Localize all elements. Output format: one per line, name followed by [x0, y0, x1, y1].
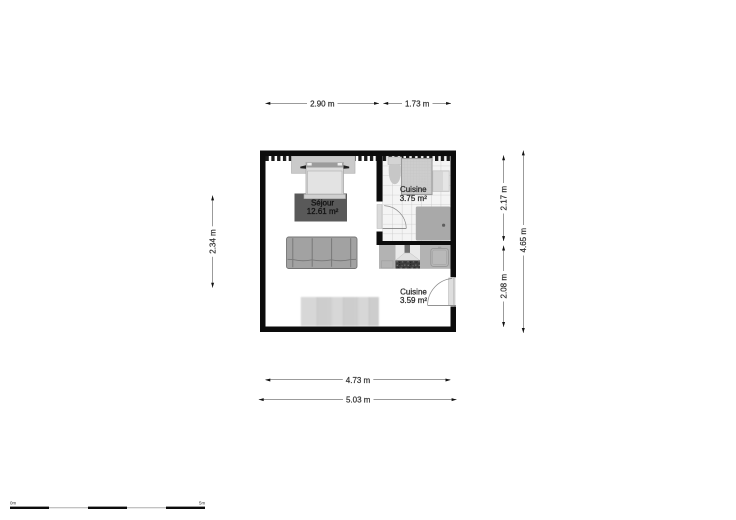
svg-text:5.03 m: 5.03 m	[346, 396, 371, 405]
svg-text:3.75 m²: 3.75 m²	[400, 194, 427, 203]
svg-text:Séjour: Séjour	[311, 199, 334, 208]
svg-text:2.08 m: 2.08 m	[500, 274, 509, 299]
svg-text:Cuisine: Cuisine	[400, 287, 427, 296]
svg-text:3.59 m²: 3.59 m²	[400, 296, 427, 305]
svg-text:1.73 m: 1.73 m	[405, 99, 430, 108]
svg-text:2.17 m: 2.17 m	[500, 186, 509, 211]
svg-text:5m: 5m	[199, 501, 206, 506]
svg-text:Cuisine: Cuisine	[400, 185, 427, 194]
svg-text:4.65 m: 4.65 m	[519, 228, 528, 253]
svg-text:12.61 m²: 12.61 m²	[307, 207, 339, 216]
svg-text:2.90 m: 2.90 m	[310, 99, 335, 108]
svg-text:2.34 m: 2.34 m	[209, 229, 218, 254]
svg-text:4.73 m: 4.73 m	[346, 376, 371, 385]
svg-text:0m: 0m	[10, 501, 17, 506]
